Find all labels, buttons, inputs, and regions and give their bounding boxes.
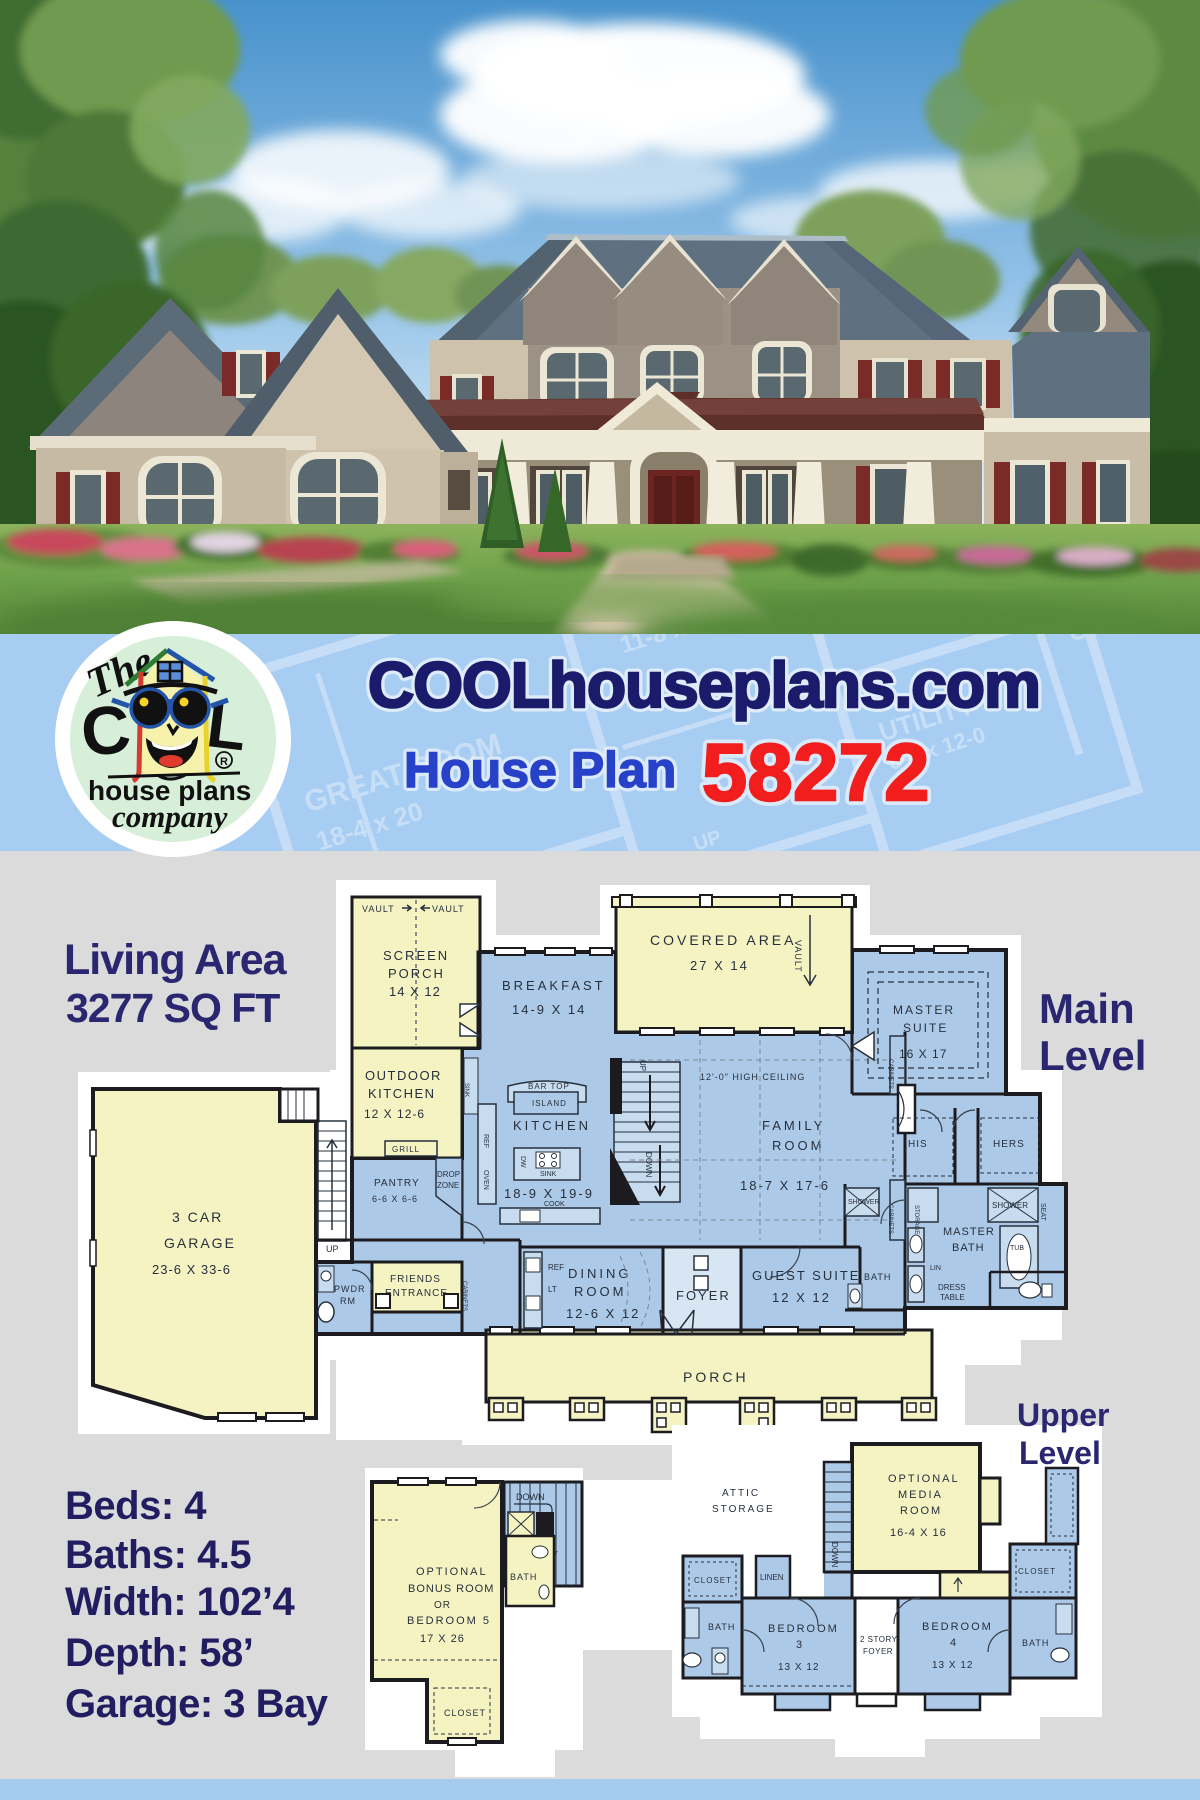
svg-text:CABINETS: CABINETS (887, 1204, 893, 1234)
svg-text:BEDROOM 5: BEDROOM 5 (407, 1615, 491, 1627)
svg-text:SUITE: SUITE (903, 1021, 948, 1035)
svg-text:DOWN: DOWN (516, 1492, 545, 1502)
svg-text:UP: UP (326, 1244, 339, 1254)
svg-text:ISLAND: ISLAND (532, 1099, 567, 1108)
svg-text:13 X 12: 13 X 12 (932, 1660, 973, 1671)
svg-text:27 X 14: 27 X 14 (690, 958, 749, 973)
svg-text:KITCHEN: KITCHEN (513, 1118, 591, 1133)
svg-text:OVEN: OVEN (482, 1170, 489, 1190)
svg-text:DRESS: DRESS (938, 1283, 966, 1292)
svg-text:OPTIONAL: OPTIONAL (416, 1566, 488, 1578)
svg-text:Level: Level (1019, 1435, 1101, 1471)
svg-text:SHOWER: SHOWER (848, 1199, 880, 1206)
svg-text:CABINETS: CABINETS (461, 1281, 467, 1311)
svg-text:DOWN: DOWN (830, 1542, 839, 1568)
svg-text:12 X 12-6: 12 X 12-6 (364, 1107, 425, 1121)
svg-text:4: 4 (950, 1637, 957, 1649)
svg-text:Living Area: Living Area (64, 936, 288, 984)
svg-text:PWDR: PWDR (334, 1284, 366, 1294)
svg-text:DOWN: DOWN (644, 1152, 653, 1178)
svg-text:16-4 X 16: 16-4 X 16 (890, 1527, 947, 1539)
svg-text:REF: REF (482, 1134, 489, 1148)
svg-text:REF: REF (548, 1263, 564, 1272)
svg-text:Width: 102’4: Width: 102’4 (65, 1580, 295, 1624)
svg-text:LT: LT (548, 1285, 557, 1294)
svg-text:MASTER: MASTER (943, 1226, 995, 1238)
svg-text:STORAGE: STORAGE (913, 1205, 919, 1234)
svg-text:12-6 X 12: 12-6 X 12 (566, 1306, 640, 1321)
svg-text:STORAGE: STORAGE (712, 1504, 775, 1515)
svg-text:DROP: DROP (437, 1170, 460, 1179)
svg-text:LIN: LIN (930, 1265, 941, 1272)
svg-text:3 CAR: 3 CAR (172, 1209, 223, 1225)
svg-text:18-9 X 19-9: 18-9 X 19-9 (504, 1186, 594, 1201)
svg-text:VAULT: VAULT (432, 904, 465, 914)
svg-text:MASTER: MASTER (893, 1003, 955, 1017)
svg-text:ENTRANCE: ENTRANCE (385, 1288, 448, 1299)
svg-text:TABLE: TABLE (940, 1293, 965, 1302)
svg-text:17 X 26: 17 X 26 (420, 1633, 465, 1645)
svg-text:HIS: HIS (908, 1139, 928, 1150)
svg-text:Baths: 4.5: Baths: 4.5 (65, 1533, 251, 1577)
svg-text:BATH: BATH (1022, 1638, 1049, 1648)
svg-text:GUEST SUITE: GUEST SUITE (752, 1268, 860, 1283)
svg-text:CLOSET: CLOSET (694, 1576, 732, 1585)
svg-text:Level: Level (1039, 1032, 1146, 1079)
svg-text:UP: UP (638, 1060, 647, 1071)
svg-text:DW: DW (519, 1156, 526, 1168)
svg-text:16 X 17: 16 X 17 (899, 1047, 947, 1061)
svg-text:FOYER: FOYER (863, 1647, 893, 1656)
svg-text:CABINETS: CABINETS (887, 1059, 893, 1089)
svg-text:OUTDOOR: OUTDOOR (365, 1068, 442, 1083)
svg-text:COVERED AREA: COVERED AREA (650, 932, 796, 948)
svg-text:14-9 X 14: 14-9 X 14 (512, 1002, 586, 1017)
svg-text:BREAKFAST: BREAKFAST (502, 978, 606, 993)
svg-text:GRILL: GRILL (392, 1145, 420, 1154)
svg-text:Garage: 3 Bay: Garage: 3 Bay (65, 1682, 329, 1726)
svg-text:BEDROOM: BEDROOM (922, 1621, 993, 1633)
svg-text:TUB: TUB (1010, 1245, 1024, 1252)
svg-text:Beds: 4: Beds: 4 (65, 1484, 207, 1528)
svg-text:PANTRY: PANTRY (374, 1178, 420, 1189)
svg-text:14 X 12: 14 X 12 (389, 984, 441, 999)
svg-text:GARAGE: GARAGE (164, 1235, 236, 1251)
svg-text:RM: RM (340, 1296, 356, 1306)
svg-text:23-6 X 33-6: 23-6 X 33-6 (152, 1262, 231, 1277)
svg-text:SHOWER: SHOWER (992, 1201, 1028, 1210)
svg-text:BEDROOM: BEDROOM (768, 1623, 839, 1635)
svg-text:SINK: SINK (463, 1083, 469, 1097)
svg-text:CLOSET: CLOSET (1018, 1567, 1056, 1576)
svg-text:2 STORY: 2 STORY (860, 1635, 898, 1644)
svg-text:18-7 X 17-6: 18-7 X 17-6 (740, 1178, 830, 1193)
svg-text:MEDIA: MEDIA (898, 1489, 943, 1501)
svg-text:FRIENDS: FRIENDS (390, 1274, 441, 1285)
svg-text:BATH: BATH (708, 1622, 735, 1632)
svg-text:KITCHEN: KITCHEN (368, 1086, 436, 1101)
svg-text:HERS: HERS (993, 1139, 1025, 1150)
svg-text:BAR TOP: BAR TOP (528, 1082, 570, 1091)
svg-text:13 X 12: 13 X 12 (778, 1662, 819, 1673)
svg-text:12 X 12: 12 X 12 (772, 1290, 831, 1305)
svg-text:3277 SQ FT: 3277 SQ FT (66, 985, 280, 1031)
svg-text:SINK: SINK (540, 1171, 557, 1178)
svg-text:BATH: BATH (864, 1272, 891, 1282)
svg-text:3: 3 (796, 1639, 803, 1651)
svg-text:FAMILY: FAMILY (762, 1118, 825, 1133)
svg-text:VAULT: VAULT (362, 904, 395, 914)
svg-text:ZONE: ZONE (437, 1181, 459, 1190)
svg-text:Depth: 58’: Depth: 58’ (65, 1631, 253, 1675)
svg-text:Upper: Upper (1017, 1397, 1109, 1433)
svg-text:6-6 X 6-6: 6-6 X 6-6 (372, 1194, 418, 1204)
svg-text:ROOM: ROOM (900, 1505, 942, 1517)
svg-text:OR: OR (434, 1600, 451, 1611)
svg-text:ROOM: ROOM (574, 1284, 626, 1299)
svg-text:ATTIC: ATTIC (722, 1488, 760, 1499)
svg-text:Main: Main (1039, 985, 1135, 1032)
svg-text:LINEN: LINEN (760, 1573, 784, 1582)
svg-text:COOK: COOK (544, 1201, 565, 1208)
svg-text:BATH: BATH (510, 1572, 537, 1582)
svg-text:ROOM: ROOM (772, 1138, 824, 1153)
svg-text:OPTIONAL: OPTIONAL (888, 1473, 960, 1485)
svg-text:DINING: DINING (568, 1266, 632, 1281)
svg-text:R: R (220, 756, 228, 768)
svg-text:12'-0" HIGH CEILING: 12'-0" HIGH CEILING (700, 1072, 805, 1082)
svg-text:PORCH: PORCH (683, 1369, 749, 1385)
svg-text:BATH: BATH (952, 1242, 985, 1254)
svg-text:VAULT: VAULT (793, 940, 803, 973)
svg-text:BONUS ROOM: BONUS ROOM (408, 1583, 494, 1595)
svg-text:CLOSET: CLOSET (444, 1708, 486, 1718)
svg-text:company: company (112, 799, 228, 834)
svg-text:SEAT: SEAT (1039, 1203, 1046, 1221)
